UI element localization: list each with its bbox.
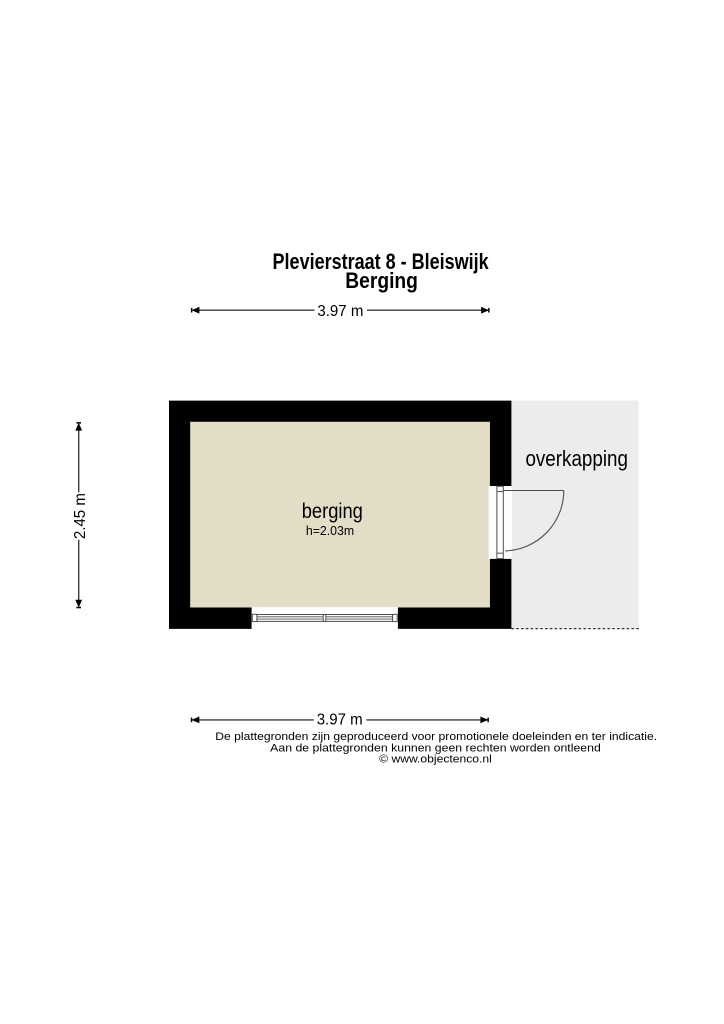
svg-text:De plattegronden zijn geproduc: De plattegronden zijn geproduceerd voor …: [215, 731, 657, 743]
svg-text:© www.objectenco.nl: © www.objectenco.nl: [379, 754, 492, 766]
svg-text:2.45 m: 2.45 m: [72, 493, 89, 539]
svg-text:Aan de plattegronden kunnen ge: Aan de plattegronden kunnen geen rechten…: [270, 742, 601, 754]
svg-text:3.97 m: 3.97 m: [317, 303, 363, 320]
svg-text:overkapping: overkapping: [525, 446, 628, 471]
svg-text:Berging: Berging: [345, 268, 418, 293]
svg-text:berging: berging: [302, 499, 363, 523]
svg-text:h=2.03m: h=2.03m: [306, 523, 354, 538]
svg-text:3.97 m: 3.97 m: [317, 711, 363, 728]
